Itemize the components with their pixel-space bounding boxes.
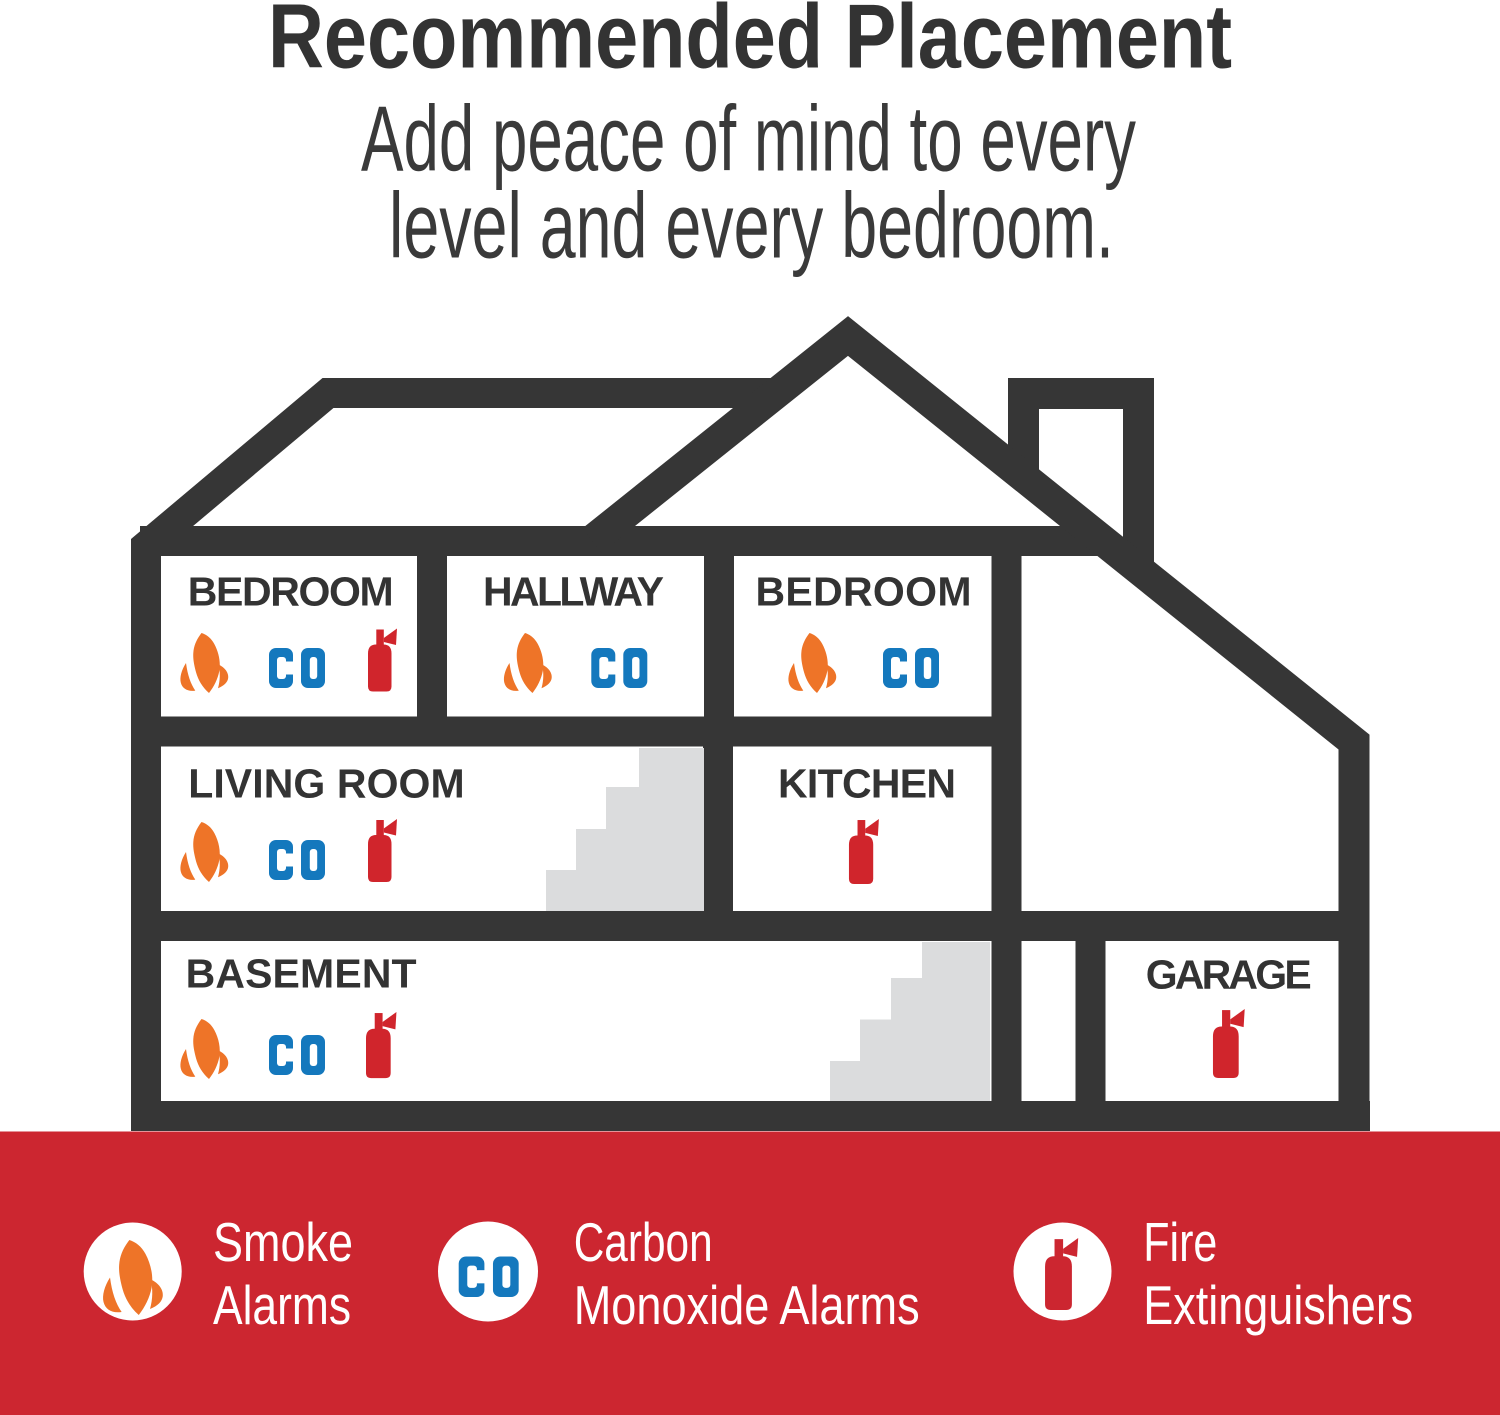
svg-text:BASEMENT: BASEMENT <box>186 951 417 997</box>
svg-text:GARAGE: GARAGE <box>1146 951 1312 997</box>
svg-text:Recommended Placement: Recommended Placement <box>268 0 1232 88</box>
svg-text:KITCHEN: KITCHEN <box>778 761 956 807</box>
svg-text:Fire: Fire <box>1143 1211 1217 1273</box>
svg-text:Carbon: Carbon <box>574 1211 713 1273</box>
svg-text:Alarms: Alarms <box>213 1274 351 1336</box>
svg-text:level and every bedroom.: level and every bedroom. <box>389 174 1114 278</box>
svg-text:LIVING ROOM: LIVING ROOM <box>188 761 465 807</box>
svg-text:Smoke: Smoke <box>213 1211 353 1273</box>
svg-text:Monoxide Alarms: Monoxide Alarms <box>574 1274 920 1336</box>
svg-text:Extinguishers: Extinguishers <box>1143 1274 1413 1336</box>
svg-text:BEDROOM: BEDROOM <box>188 569 394 615</box>
svg-text:BEDROOM: BEDROOM <box>756 569 972 615</box>
svg-text:HALLWAY: HALLWAY <box>483 569 664 615</box>
